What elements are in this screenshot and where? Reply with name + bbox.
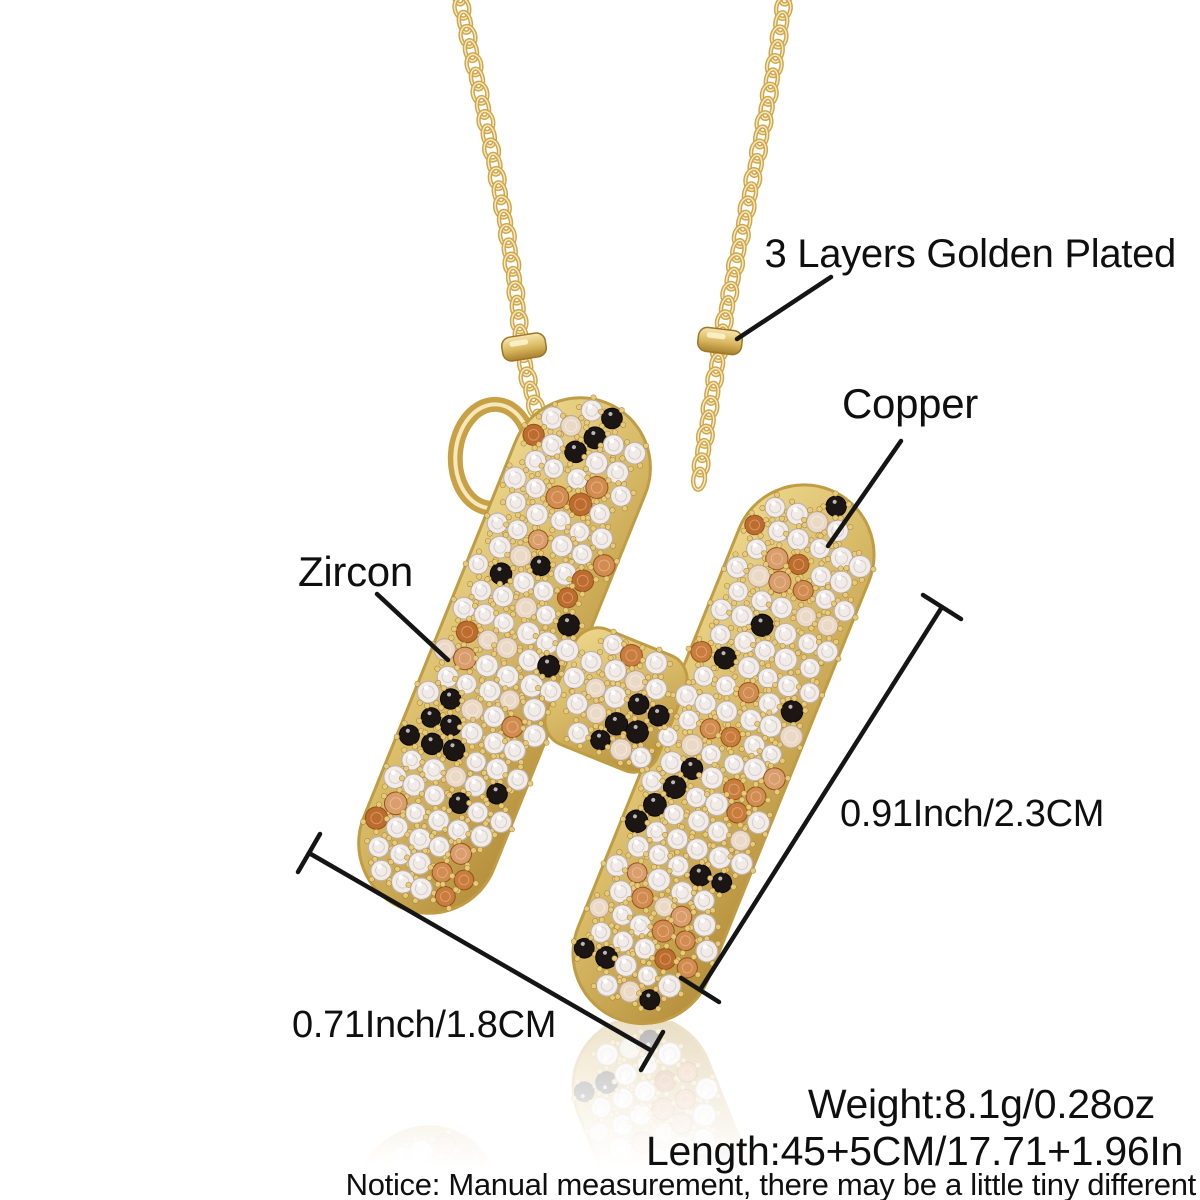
copper-label: Copper	[842, 381, 978, 427]
plating-leader-line	[737, 277, 831, 339]
product-annotation-image: 3 Layers Golden Plated Copper Zircon 0.9…	[0, 0, 1200, 1200]
zircon-leader-line	[377, 594, 448, 660]
pendant-letter-h	[267, 347, 899, 1046]
width-dimension-tick-left	[298, 834, 320, 872]
plating-label: 3 Layers Golden Plated	[765, 232, 1176, 276]
pendant-width-label: 0.71Inch/1.8CM	[292, 1005, 556, 1047]
height-dimension-tick-top	[923, 595, 961, 619]
pendant-height-label: 0.91Inch/2.3CM	[840, 794, 1104, 836]
notice-text: Notice: Manual measurement, there may be…	[346, 1168, 1196, 1200]
weight-spec: Weight:8.1g/0.28oz	[808, 1082, 1155, 1127]
zircon-label: Zircon	[298, 549, 413, 595]
chain-bead-left	[500, 332, 547, 363]
necklace-illustration	[0, 0, 1200, 1200]
